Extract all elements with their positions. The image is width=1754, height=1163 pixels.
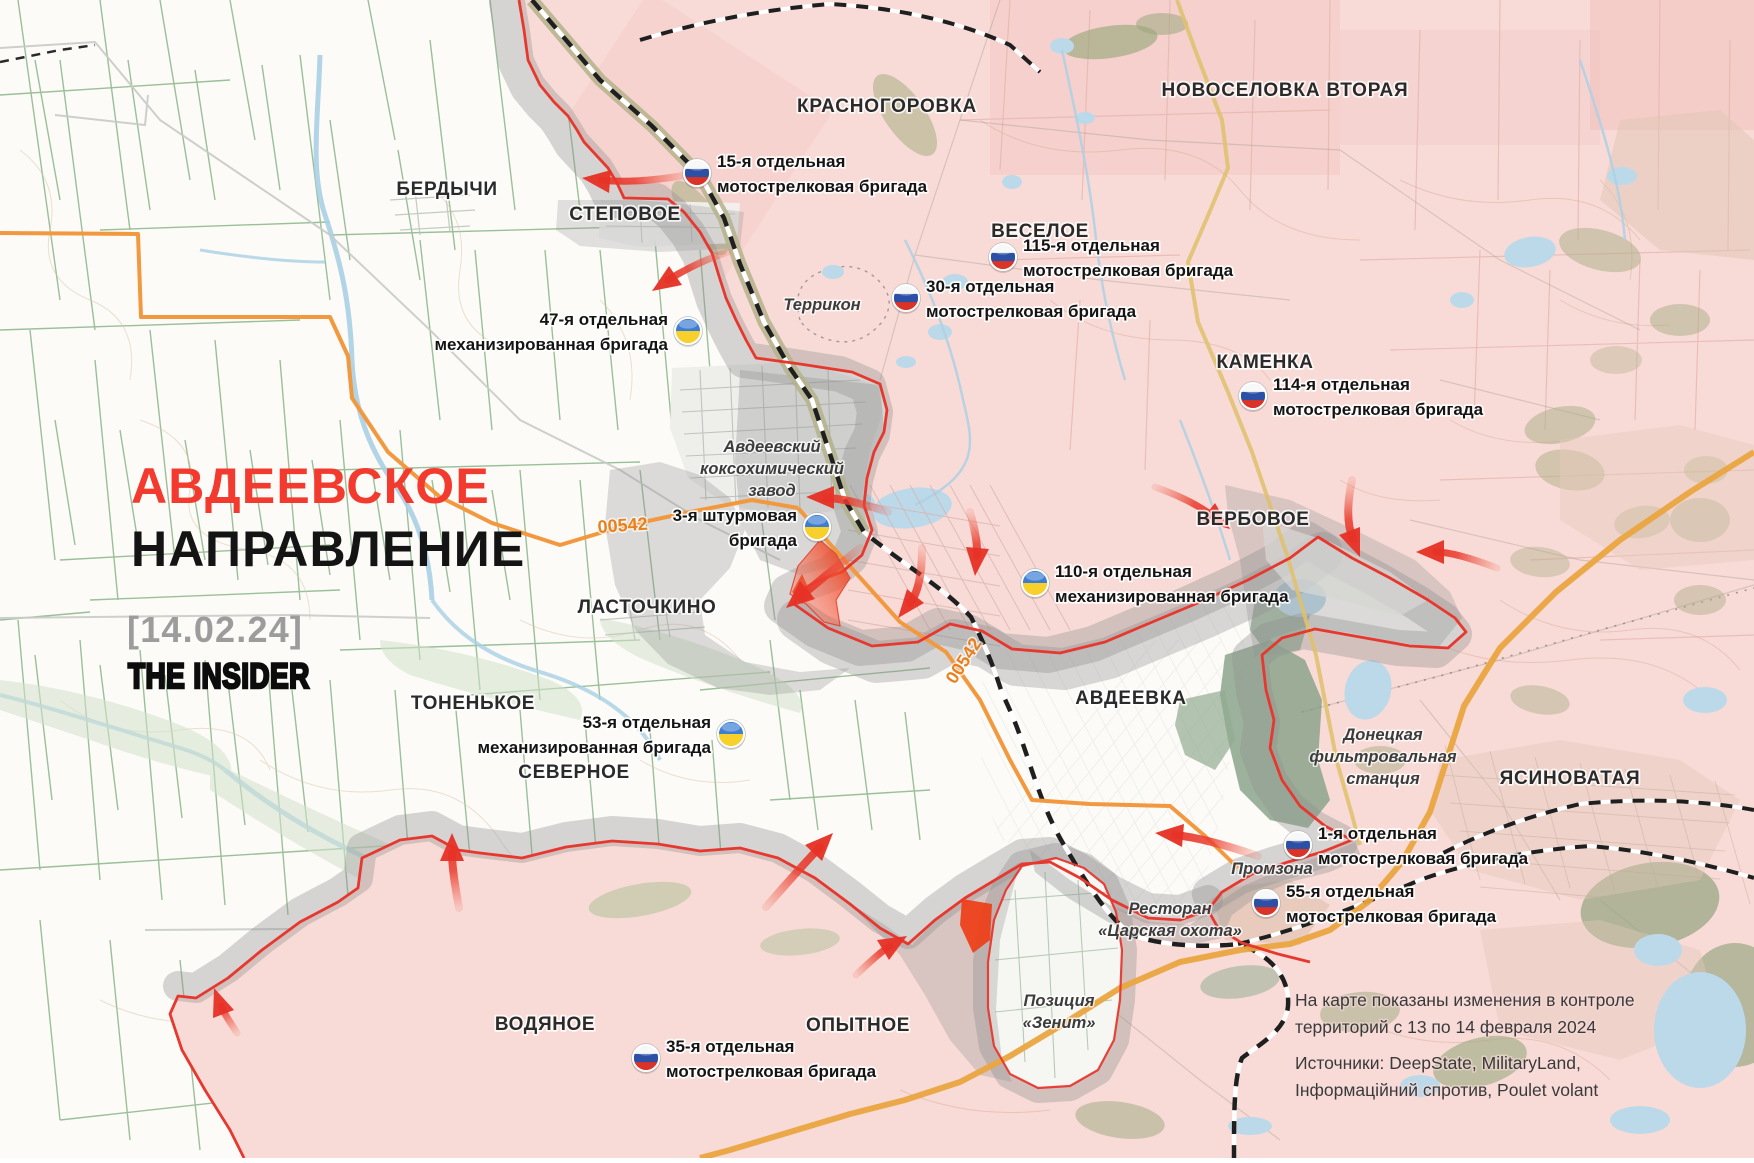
svg-text:мотострелковая бригада: мотострелковая бригада [1023, 261, 1234, 280]
svg-text:53-я отдельная: 53-я отдельная [583, 713, 711, 732]
svg-text:фильтровальная: фильтровальная [1309, 748, 1456, 766]
svg-text:завод: завод [748, 482, 795, 500]
svg-text:БЕРДЫЧИ: БЕРДЫЧИ [396, 179, 497, 200]
svg-text:35-я отдельная: 35-я отдельная [666, 1037, 794, 1056]
svg-text:Ресторан: Ресторан [1128, 900, 1211, 918]
svg-text:ЯСИНОВАТАЯ: ЯСИНОВАТАЯ [1500, 768, 1641, 789]
svg-text:«Зенит»: «Зенит» [1023, 1014, 1096, 1032]
svg-text:ВОДЯНОЕ: ВОДЯНОЕ [495, 1014, 595, 1035]
svg-text:15-я отдельная: 15-я отдельная [717, 152, 845, 171]
svg-text:ВЕРБОВОЕ: ВЕРБОВОЕ [1196, 509, 1309, 530]
svg-text:механизированная бригада: механизированная бригада [1055, 587, 1289, 606]
svg-text:ВЕСЕЛОЕ: ВЕСЕЛОЕ [991, 221, 1089, 242]
svg-text:СТЕПОВОЕ: СТЕПОВОЕ [569, 204, 680, 225]
svg-text:ОПЫТНОЕ: ОПЫТНОЕ [806, 1015, 910, 1036]
svg-text:НОВОСЕЛОВКА ВТОРАЯ: НОВОСЕЛОВКА ВТОРАЯ [1161, 80, 1408, 101]
svg-text:[14.02.24]: [14.02.24] [127, 609, 303, 650]
svg-text:СЕВЕРНОЕ: СЕВЕРНОЕ [518, 762, 629, 783]
svg-text:мотострелковая бригада: мотострелковая бригада [666, 1062, 877, 1081]
svg-text:110-я отдельная: 110-я отдельная [1055, 562, 1192, 581]
svg-text:Авдеевский: Авдеевский [722, 438, 820, 456]
svg-text:Террикон: Террикон [783, 296, 860, 314]
svg-text:НАПРАВЛЕНИЕ: НАПРАВЛЕНИЕ [131, 521, 525, 577]
svg-text:THE INSIDER: THE INSIDER [128, 656, 310, 696]
svg-text:Донецкая: Донецкая [1341, 726, 1423, 744]
svg-text:30-я отдельная: 30-я отдельная [926, 277, 1054, 296]
svg-text:Промзона: Промзона [1231, 860, 1312, 878]
svg-text:00542: 00542 [597, 514, 648, 537]
svg-text:1-я отдельная: 1-я отдельная [1318, 824, 1437, 843]
svg-text:ЛАСТОЧКИНО: ЛАСТОЧКИНО [578, 597, 717, 618]
svg-text:мотострелковая бригада: мотострелковая бригада [1286, 907, 1497, 926]
svg-text:114-я отдельная: 114-я отдельная [1273, 375, 1410, 394]
svg-text:мотострелковая бригада: мотострелковая бригада [717, 177, 928, 196]
svg-text:мотострелковая бригада: мотострелковая бригада [1273, 400, 1484, 419]
svg-text:«Царская охота»: «Царская охота» [1098, 922, 1242, 940]
svg-text:мотострелковая бригада: мотострелковая бригада [926, 302, 1137, 321]
svg-text:механизированная бригада: механизированная бригада [477, 738, 711, 757]
svg-text:механизированная бригада: механизированная бригада [434, 335, 668, 354]
svg-text:55-я отдельная: 55-я отдельная [1286, 882, 1414, 901]
svg-text:Інформаційний спротив, Poulet: Інформаційний спротив, Poulet volant [1295, 1080, 1598, 1100]
svg-text:Позиция: Позиция [1024, 992, 1095, 1010]
svg-text:КАМЕНКА: КАМЕНКА [1216, 352, 1313, 373]
svg-text:Источники: DeepState, Military: Источники: DeepState, MilitaryLand, [1295, 1053, 1581, 1073]
svg-text:бригада: бригада [729, 531, 798, 550]
svg-text:станция: станция [1346, 770, 1420, 788]
svg-text:АВДЕЕВКА: АВДЕЕВКА [1075, 688, 1187, 709]
svg-text:АВДЕЕВСКОЕ: АВДЕЕВСКОЕ [131, 458, 490, 514]
svg-text:На карте показаны изменения в: На карте показаны изменения в контроле [1295, 990, 1635, 1010]
svg-text:территорий с 13 по 14 февраля: территорий с 13 по 14 февраля 2024 [1295, 1017, 1596, 1037]
svg-text:КРАСНОГОРОВКА: КРАСНОГОРОВКА [797, 96, 977, 117]
svg-text:мотострелковая бригада: мотострелковая бригада [1318, 849, 1529, 868]
svg-text:ТОНЕНЬКОЕ: ТОНЕНЬКОЕ [411, 693, 535, 714]
svg-text:коксохимический: коксохимический [700, 460, 844, 478]
svg-text:47-я отдельная: 47-я отдельная [540, 310, 668, 329]
svg-text:3-я штурмовая: 3-я штурмовая [673, 506, 797, 525]
